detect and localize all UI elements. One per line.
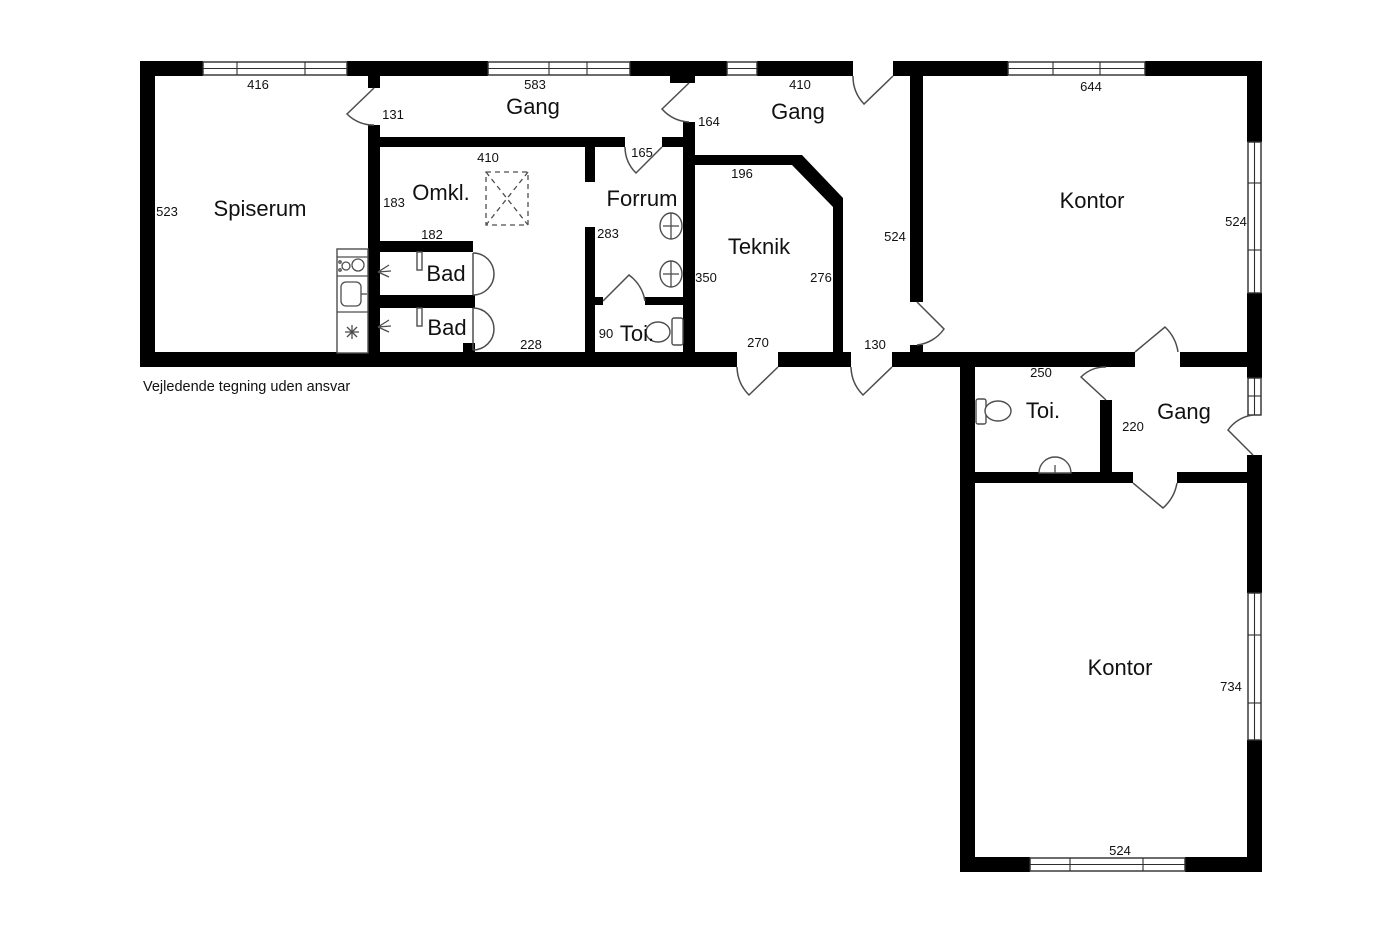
dim-gang-mid-height: 220 <box>1122 419 1144 434</box>
room-label-teknik: Teknik <box>728 234 791 259</box>
wall-segment <box>380 241 473 252</box>
dim-door-teknik-exit: 270 <box>747 335 769 350</box>
wall-segment <box>380 295 475 308</box>
wall-segment <box>693 155 792 165</box>
door-swing-toi-small <box>603 275 645 301</box>
door-swing-teknik-exit <box>737 367 778 395</box>
door-swing-gang-mid-exit <box>1228 415 1253 455</box>
room-label-kontor-top: Kontor <box>1060 188 1125 213</box>
dim-win-gang-top: 583 <box>524 77 546 92</box>
window-small-top <box>727 62 757 75</box>
room-label-kontor-bottom: Kontor <box>1088 655 1153 680</box>
dim-spiserum-height: 523 <box>156 204 178 219</box>
wall-segment <box>585 227 595 352</box>
kitchen-unit <box>337 249 368 353</box>
dim-kontor-bottom-height: 734 <box>1220 679 1242 694</box>
hand-basin-icon <box>1039 457 1071 473</box>
dim-gang-right-height: 524 <box>884 229 906 244</box>
room-label-gang-top: Gang <box>506 94 560 119</box>
toilet-icon <box>976 399 1011 424</box>
dim-door-forrum: 165 <box>631 145 653 160</box>
wall-segment <box>140 61 155 367</box>
wall-segment <box>140 352 737 367</box>
room-label-toi-small: Toi. <box>620 321 654 346</box>
window-kontor-bottom-right <box>1248 593 1261 740</box>
wall-segment <box>1185 857 1262 872</box>
wall-segment <box>910 61 923 302</box>
room-label-spiserum: Spiserum <box>214 196 307 221</box>
room-label-forrum: Forrum <box>607 186 678 211</box>
dim-door-gang-exit: 130 <box>864 337 886 352</box>
window-gang-mid-right <box>1248 378 1261 415</box>
door-swing-kontor-top-south <box>1135 327 1178 352</box>
window-kontor-top-right <box>1248 142 1261 293</box>
wall-segment <box>1177 472 1262 483</box>
window-spiserum <box>203 62 347 75</box>
wall-segment-diagonal <box>792 155 843 207</box>
wall-segment <box>670 76 695 83</box>
fridge-icon <box>345 325 359 339</box>
door-leaf <box>417 252 422 270</box>
dim-win-kontor-bottom: 524 <box>1109 843 1131 858</box>
room-label-omkl: Omkl. <box>412 180 469 205</box>
wall-segment <box>960 352 975 872</box>
wall-basin-icon <box>660 213 682 239</box>
wall-segment <box>1247 293 1262 378</box>
room-label-toi-mid: Toi. <box>1026 398 1060 423</box>
dim-teknik-left: 350 <box>695 270 717 285</box>
dim-teknik-right: 276 <box>810 270 832 285</box>
floor-plan: Spiserum Gang Omkl. Forrum Teknik Gang K… <box>0 0 1400 933</box>
dim-corridor-bottom: 228 <box>520 337 542 352</box>
door-leaf <box>417 308 422 326</box>
wall-segment <box>368 125 380 352</box>
dim-forrum-left: 283 <box>597 226 619 241</box>
dim-omkl-width: 410 <box>477 150 499 165</box>
shower-area-dashed <box>486 172 528 225</box>
wall-segment <box>1247 740 1262 872</box>
door-swing-gang-mid-south <box>1133 483 1177 508</box>
dim-win-gang-upper-right: 410 <box>789 77 811 92</box>
wall-segment <box>368 76 380 88</box>
dim-teknik-top: 196 <box>731 166 753 181</box>
wall-segment <box>347 61 488 76</box>
wall-segment <box>1100 400 1112 472</box>
dim-kontor-top-height: 524 <box>1225 214 1247 229</box>
walls <box>140 61 1262 872</box>
wall-segment <box>778 352 851 367</box>
door-swing-gang-exit <box>851 367 892 395</box>
dim-omkl-left: 183 <box>383 195 405 210</box>
disclaimer-text: Vejledende tegning uden ansvar <box>143 379 350 395</box>
wall-segment <box>592 297 603 305</box>
wall-segment <box>960 857 1030 872</box>
door-swing-spiserum <box>347 88 374 125</box>
dim-win-kontor-top: 644 <box>1080 79 1102 94</box>
door-bad-2 <box>473 308 494 350</box>
wall-segment <box>630 61 727 76</box>
wall-segment <box>585 137 595 182</box>
wall-basin-icon <box>660 261 682 287</box>
door-bad-1 <box>473 253 494 295</box>
dim-door-gang-divider: 164 <box>698 114 720 129</box>
dim-door-spiserum: 131 <box>382 107 404 122</box>
wall-segment <box>910 345 923 352</box>
door-swing-kontor-top-west <box>917 302 944 345</box>
dim-toi-mid-width: 250 <box>1030 365 1052 380</box>
wall-segment <box>833 203 843 352</box>
room-label-bad-2: Bad <box>427 315 466 340</box>
dim-bad-width: 182 <box>421 227 443 242</box>
dim-toi-small-width: 90 <box>599 326 613 341</box>
room-label-gang-mid: Gang <box>1157 399 1211 424</box>
dim-win-spiserum: 416 <box>247 77 269 92</box>
wall-segment <box>645 297 683 305</box>
wall-segment <box>662 137 683 147</box>
window-kontor-top <box>1008 62 1145 75</box>
wall-segment <box>1145 61 1262 76</box>
wall-segment <box>1247 61 1262 142</box>
room-label-gang-upper-right: Gang <box>771 99 825 124</box>
door-swing-gang-divider <box>662 83 689 122</box>
door-swing-toi-mid <box>1081 367 1106 400</box>
wall-segment <box>757 61 853 76</box>
window-gang-top <box>488 62 630 75</box>
window-kontor-bottom <box>1030 858 1185 871</box>
room-label-bad-1: Bad <box>426 261 465 286</box>
floorplan-canvas: Spiserum Gang Omkl. Forrum Teknik Gang K… <box>0 0 1400 933</box>
door-swing-entry-top <box>853 76 893 104</box>
wall-segment <box>892 352 1135 367</box>
